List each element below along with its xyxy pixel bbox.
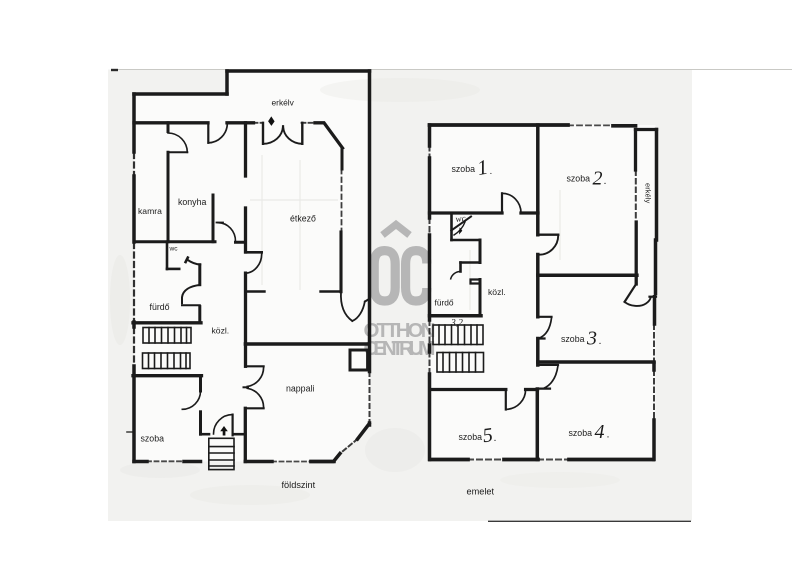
svg-text:CENTRUM: CENTRUM: [364, 337, 436, 360]
svg-text:.: .: [494, 433, 497, 444]
svg-text:földszint: földszint: [282, 480, 316, 490]
svg-text:wc: wc: [455, 213, 466, 224]
svg-text:konyha: konyha: [178, 197, 206, 207]
svg-text:fürdő: fürdő: [435, 297, 454, 307]
svg-text:erkély: erkély: [644, 183, 653, 203]
svg-text:szoba: szoba: [452, 164, 476, 174]
svg-text:szoba: szoba: [141, 434, 165, 444]
svg-text:szoba: szoba: [561, 334, 585, 344]
svg-text:.: .: [607, 430, 610, 441]
svg-text:4: 4: [595, 421, 605, 443]
svg-text:.: .: [604, 176, 607, 187]
svg-text:.: .: [490, 166, 492, 176]
svg-text:3,2: 3,2: [450, 319, 463, 329]
svg-text:nappali: nappali: [286, 384, 314, 394]
svg-text:kamra: kamra: [138, 206, 162, 216]
svg-text:emelet: emelet: [467, 487, 495, 497]
svg-text:2: 2: [593, 168, 603, 190]
svg-text:fürdő: fürdő: [150, 302, 170, 312]
svg-text:szoba: szoba: [459, 432, 483, 442]
svg-text:.: .: [599, 336, 602, 347]
svg-text:közl.: közl.: [212, 326, 230, 336]
svg-text:erkélv: erkélv: [272, 98, 295, 108]
svg-text:közl.: közl.: [488, 287, 506, 297]
svg-text:szoba: szoba: [567, 174, 591, 184]
svg-text:étkező: étkező: [290, 213, 316, 223]
svg-text:szoba: szoba: [569, 428, 593, 438]
svg-text:wc: wc: [169, 246, 179, 253]
svg-text:3: 3: [586, 328, 597, 350]
